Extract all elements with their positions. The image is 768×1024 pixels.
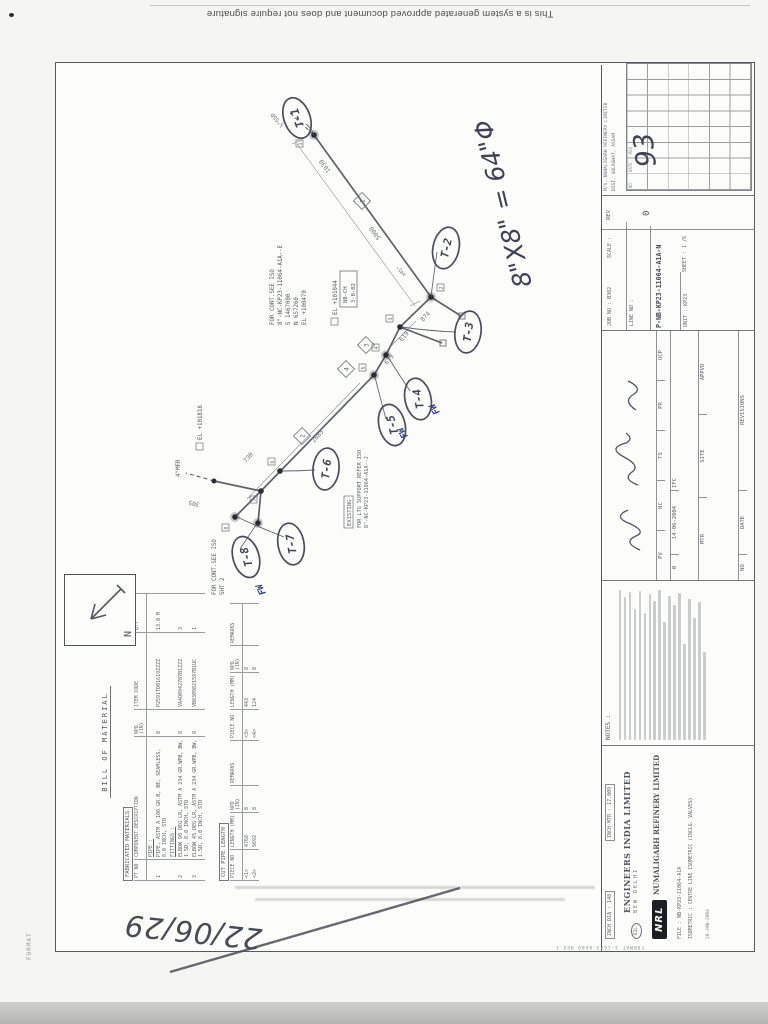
support-note: EXISTING FOR LTG SUPPORT REFER ISO 8"-NC… <box>344 450 370 528</box>
bom-group-pipe: PIPE : <box>147 737 156 860</box>
sheet-label: SHEET : 1 /6 <box>682 236 688 272</box>
svg-text:3: 3 <box>388 317 394 320</box>
signature-scribbles <box>602 330 656 580</box>
file-line: FILE : NB-KP23-11064-A1A <box>677 867 683 939</box>
svg-text:5: 5 <box>361 366 367 369</box>
svg-text:FOR CONT.SEE ISO: FOR CONT.SEE ISO <box>270 269 276 325</box>
table-row: <2>56928 <4>1248 <box>251 604 259 881</box>
svg-text:S 1467000: S 1467000 <box>286 293 292 325</box>
unit-label: UNIT : KP23 <box>680 272 689 330</box>
weld-number-boxes <box>222 140 444 531</box>
svg-text:NB-CH: NB-CH <box>343 286 349 303</box>
revision-entry-row: 0 14-06-2004 IFC <box>670 330 679 580</box>
isometric-drawing: 1 2 3 4 5 6 7 8 1 2 3 <box>134 63 599 621</box>
svg-text:EXISTING: EXISTING <box>347 500 353 527</box>
bom-col-desc: COMPONENT DESCRIPTION <box>134 737 147 860</box>
support-tag: NB-CH 3-B-02 <box>340 271 357 307</box>
svg-text:8"-NC-KP23-11064-A1A--J: 8"-NC-KP23-11064-A1A--J <box>364 456 370 528</box>
eil-logo: EIL <box>622 923 642 939</box>
eil-badge: EIL <box>631 923 642 939</box>
svg-text:SHT 2: SHT 2 <box>220 578 226 595</box>
job-no: JOB NO : B302 <box>607 287 613 326</box>
notes-section: NOTES : <box>602 581 755 746</box>
bom-title: BILL OF MATERIAL <box>101 686 111 797</box>
drawing-title-line: ISOMETRIC : CENTRE LINE ISOMETRIC (INCLG… <box>689 754 694 939</box>
balloon-t2: T-2 <box>438 237 455 260</box>
job-block: JOB NO : B302 SCALE : LINE NO : P-NB-KP2… <box>602 196 755 331</box>
title-block-logos: FORMAT 3-1643-0609 REV.1 INCH DIA : 148 … <box>602 746 755 951</box>
bom-table: PT NO COMPONENT DESCRIPTION NPD (IN) ITE… <box>134 593 205 881</box>
bom-col-npd: NPD (IN) <box>134 710 147 737</box>
dim-1030: 1030 <box>318 158 333 174</box>
handwritten-grid-note: 93 <box>628 131 663 169</box>
svg-text:3: 3 <box>364 343 371 347</box>
svg-text:2: 2 <box>300 434 307 438</box>
svg-text:FOR LTG SUPPORT REFER ISO: FOR LTG SUPPORT REFER ISO <box>357 450 363 528</box>
drawing-sheet: BILL OF MATERIAL FABRICATED MATERIALS PT… <box>55 62 755 952</box>
balloon-t3: T-3 <box>461 321 477 343</box>
north-label: N <box>123 631 134 637</box>
format-date-line: 20-JAN-2004 <box>706 909 711 939</box>
inch-dia-box: INCH DIA : 148 <box>605 891 615 939</box>
rev-desc: IFC <box>671 330 679 490</box>
notes-title: NOTES : <box>605 715 612 740</box>
north-arrow-box: N <box>64 574 136 646</box>
table-row: <1>47688 <3>4438 <box>243 604 252 881</box>
notes-illegible-lines <box>616 588 708 740</box>
elevation-b: EL +101818 <box>198 405 204 440</box>
page-edge-label: FORMAT <box>26 932 33 960</box>
svg-text:EL +100470: EL +100470 <box>302 290 308 325</box>
system-generated-text: This is a system generated approved docu… <box>140 8 620 19</box>
pipe-runs <box>214 135 461 523</box>
handwritten-size-note: 8"X8" = 64"Φ <box>468 117 538 291</box>
nrl-logo: NRL <box>647 900 667 939</box>
dim-2885: 2885 <box>310 428 325 444</box>
scale-label: SCALE : <box>607 237 613 258</box>
dim-305: 305 <box>188 498 201 508</box>
title-block-strip: FORMAT 3-1643-0609 REV.1 INCH DIA : 148 … <box>601 65 755 951</box>
rev-column: REV 0 <box>602 194 755 230</box>
svg-text:7: 7 <box>252 498 258 501</box>
line-no-label: LINE NO : <box>626 222 635 330</box>
dim-619-a: 619 <box>398 330 411 343</box>
drawing-number: P-NB-KP23-11064-A1A-N <box>650 226 663 330</box>
scan-top-rule <box>150 5 750 6</box>
svg-text:N 657260: N 657260 <box>294 297 300 325</box>
angle-label: x45° <box>396 264 408 277</box>
rev-date: 14-06-2004 <box>671 490 679 554</box>
svg-text:6: 6 <box>270 460 276 463</box>
fw-mark-3: FW <box>254 581 269 597</box>
elevation-a: EL +101044 <box>333 280 339 315</box>
balloon-t1: T-1 <box>288 106 307 129</box>
client-location: DIST. GOLAGHAT, ASSAM <box>612 133 617 191</box>
svg-text:8"-NC-KP23-11064-A1A--E: 8"-NC-KP23-11064-A1A--E <box>278 244 284 325</box>
svg-text:8: 8 <box>224 526 230 529</box>
svg-text:FOR CONT.SEE ISO: FOR CONT.SEE ISO <box>212 539 218 595</box>
mfr-label: 4"MFR <box>176 459 182 477</box>
weld-number-texts: 1 2 3 4 5 6 7 8 <box>224 142 445 529</box>
inch-mtr-box: INCH-MTR : 17.009 <box>605 784 615 841</box>
issue-stamp-grid: NO DATE REV <box>626 63 752 191</box>
dim-730: 730 <box>242 451 255 464</box>
rev-column-label: REV <box>606 210 612 220</box>
eil-name: ENGINEERS INDIA LIMITED <box>622 771 632 913</box>
rev-column-value: 0 <box>642 211 652 216</box>
svg-text:2: 2 <box>439 286 445 289</box>
north-arrow: N <box>65 575 135 645</box>
weld-balloon-outlines <box>228 94 484 581</box>
svg-text:3-B-02: 3-B-02 <box>351 283 357 303</box>
balloon-t6: T-6 <box>319 458 334 479</box>
svg-text:4: 4 <box>374 346 380 349</box>
scanned-document-page: This is a system generated approved docu… <box>0 0 768 1024</box>
scan-speck <box>9 13 14 17</box>
eil-city: NEW DELHI <box>633 868 639 913</box>
client-name: M/S. NUMALIGARH REFINERY LIMITED <box>604 102 609 191</box>
cont-note-top: FOR CONT.SEE ISO 8"-NC-KP23-11064-A1A--E… <box>270 244 308 325</box>
dimension-texts: 5000 1030 874 619 619 2885 730 305 x45° <box>188 158 433 508</box>
fw-marks: FW FW FW <box>254 400 442 596</box>
rev-no: 0 <box>671 554 679 580</box>
table-row: 3ELBOW 45 DEG LR, ASTM A 234 GR.WPB, BW,… <box>191 594 205 881</box>
stamp-grid-section: M/S. NUMALIGARH REFINERY LIMITED DIST. G… <box>602 65 755 196</box>
table-row: 2ELBOW 90 DEG LR, ASTM A 234 GR.WPB, BW,… <box>177 594 191 881</box>
dim-874: 874 <box>419 310 432 323</box>
cut-pipe-table: PIECE NO LENGTH (MM) NPD (IN) REMARKS PI… <box>230 603 259 881</box>
format-edge-label: FORMAT 3-1643-0609 REV.1 <box>555 944 644 949</box>
bom-group-fittings: FITTINGS : <box>169 737 177 860</box>
scan-bottom-band <box>0 1002 768 1024</box>
revision-header-row: NO DATE REVISIONS <box>738 330 747 580</box>
sig-label-row: PV NC TS PR UCP <box>656 330 665 580</box>
svg-text:1: 1 <box>360 199 367 203</box>
svg-text:1: 1 <box>298 142 304 145</box>
balloon-t8: T-8 <box>237 545 255 568</box>
svg-text:4: 4 <box>344 367 351 371</box>
sub-label-row: MTR SITE APPVD <box>698 330 707 580</box>
elevation-labels: EL +101044 EL +101818 4"MFR <box>176 280 339 477</box>
approvals-section: PV NC TS PR UCP 0 14-06-2004 IFC MTR SIT… <box>602 331 755 581</box>
cont-note-sht2: FOR CONT.SEE ISO SHT 2 <box>212 539 226 595</box>
balloon-t4: T-4 <box>410 387 427 410</box>
balloon-t7: T-7 <box>283 533 299 555</box>
nrl-name: NUMALIGARH REFINERY LIMITED <box>652 755 661 895</box>
table-row: 1PIPE, ASTM A 106 GR.B, BE, SEAMLESS, 8.… <box>155 594 169 881</box>
